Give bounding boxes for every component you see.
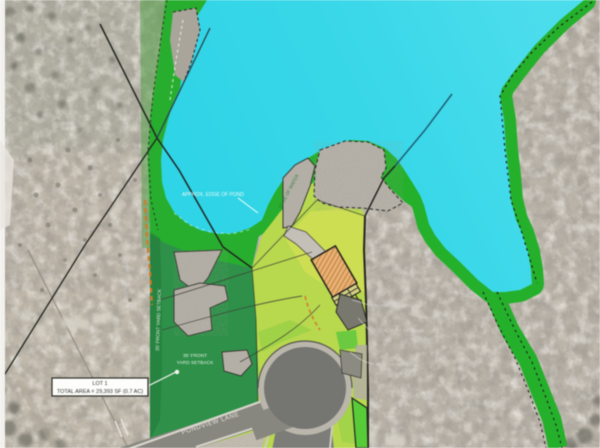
svg-text:PROPOSED DWELLING: PROPOSED DWELLING [371, 303, 423, 308]
svg-text:TOTAL AREA = 29,393 SF (0.7 AC: TOTAL AREA = 29,393 SF (0.7 AC) [57, 389, 143, 395]
svg-text:APPROX. EDGE OF POND: APPROX. EDGE OF POND [182, 192, 244, 198]
svg-text:40' REAR SETBACK: 40' REAR SETBACK [375, 362, 419, 367]
svg-text:10' SIDE YARD SETBACK: 10' SIDE YARD SETBACK [370, 328, 425, 333]
svg-text:LOT 1: LOT 1 [92, 381, 107, 387]
svg-text:YARD SETBACK: YARD SETBACK [177, 360, 214, 366]
svg-text:35' FRONT: 35' FRONT [183, 353, 207, 359]
